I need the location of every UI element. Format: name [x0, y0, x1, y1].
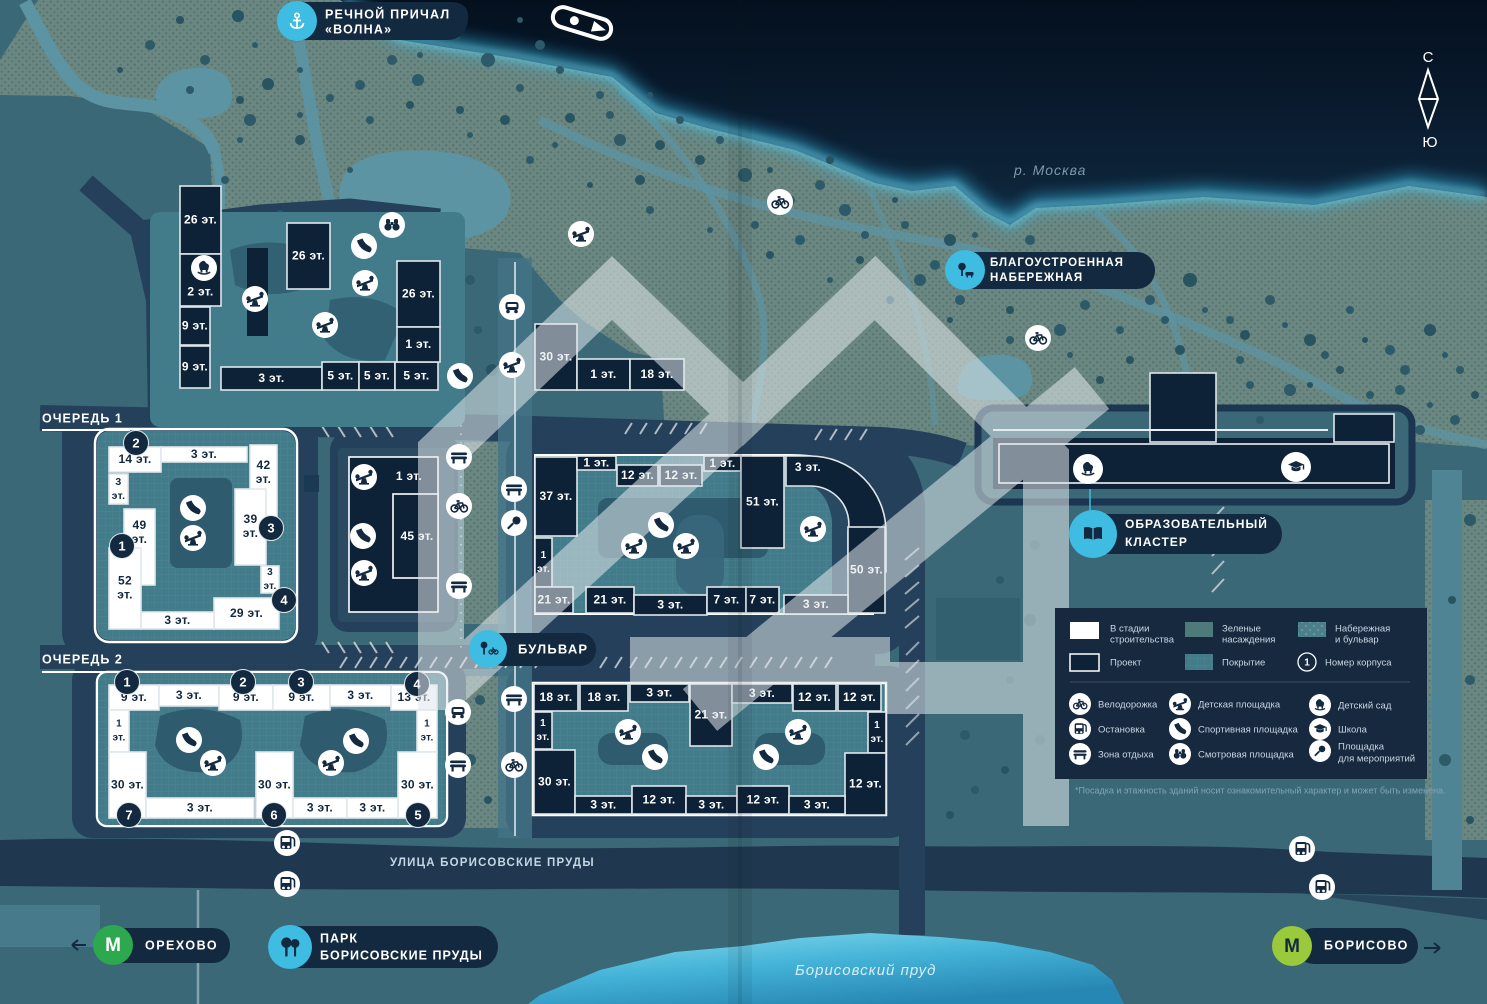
svg-text:39: 39 [244, 512, 258, 526]
svg-text:3: 3 [267, 567, 273, 578]
svg-text:ПАРК: ПАРК [320, 931, 358, 945]
svg-text:Велодорожка: Велодорожка [1098, 700, 1158, 711]
svg-text:р. Москва: р. Москва [1013, 162, 1086, 178]
svg-text:3: 3 [267, 520, 274, 535]
svg-text:Остановка: Остановка [1098, 725, 1146, 736]
svg-text:УЛИЦА БОРИСОВСКИЕ ПРУДЫ: УЛИЦА БОРИСОВСКИЕ ПРУДЫ [390, 857, 595, 869]
svg-text:Площадка: Площадка [1338, 742, 1385, 753]
svg-text:В стадии: В стадии [1110, 624, 1149, 635]
svg-text:21 эт.: 21 эт. [593, 593, 626, 607]
svg-text:1: 1 [874, 720, 880, 731]
svg-text:1 эт.: 1 эт. [590, 367, 616, 381]
svg-text:5 эт.: 5 эт. [364, 369, 390, 383]
svg-text:Детский сад: Детский сад [1338, 701, 1392, 712]
svg-text:Спортивная площадка: Спортивная площадка [1198, 725, 1298, 736]
svg-text:30 эт.: 30 эт. [538, 775, 571, 789]
svg-text:насаждения: насаждения [1222, 635, 1275, 646]
svg-text:М: М [1284, 936, 1300, 957]
svg-text:1: 1 [116, 719, 122, 730]
svg-text:3 эт.: 3 эт. [258, 371, 284, 385]
svg-text:Номер корпуса: Номер корпуса [1325, 658, 1392, 669]
svg-text:3 эт.: 3 эт. [347, 688, 373, 702]
svg-text:5 эт.: 5 эт. [327, 369, 353, 383]
svg-text:3: 3 [115, 476, 121, 488]
svg-text:эт.: эт. [117, 588, 133, 602]
svg-text:КЛАСТЕР: КЛАСТЕР [1125, 535, 1188, 549]
svg-text:Смотровая площадка: Смотровая площадка [1198, 750, 1294, 761]
svg-text:30 эт.: 30 эт. [401, 778, 434, 792]
svg-text:3 эт.: 3 эт. [698, 798, 724, 812]
svg-text:3 эт.: 3 эт. [191, 447, 217, 461]
svg-text:БОРИСОВСКИЕ ПРУДЫ: БОРИСОВСКИЕ ПРУДЫ [320, 948, 483, 962]
svg-text:БЛАГОУСТРОЕННАЯ: БЛАГОУСТРОЕННАЯ [990, 257, 1124, 269]
svg-text:6: 6 [270, 807, 277, 822]
svg-text:26 эт.: 26 эт. [184, 213, 217, 227]
svg-text:М: М [105, 935, 121, 956]
svg-text:12 эт.: 12 эт. [849, 777, 882, 791]
svg-text:3 эт.: 3 эт. [307, 801, 333, 815]
svg-text:эт.: эт. [536, 732, 549, 743]
svg-text:1: 1 [424, 719, 430, 730]
svg-text:5: 5 [414, 807, 421, 822]
svg-text:Зеленые: Зеленые [1222, 624, 1261, 635]
svg-text:эт.: эт. [256, 472, 272, 486]
svg-text:52: 52 [118, 574, 132, 588]
svg-text:7 эт.: 7 эт. [749, 593, 775, 607]
svg-text:1 эт.: 1 эт. [583, 456, 609, 470]
svg-text:1: 1 [118, 538, 125, 553]
svg-text:ОБРАЗОВАТЕЛЬНЫЙ: ОБРАЗОВАТЕЛЬНЫЙ [1125, 516, 1268, 531]
svg-text:3: 3 [297, 674, 304, 689]
svg-text:3 эт.: 3 эт. [657, 598, 683, 612]
svg-text:Проект: Проект [1110, 658, 1142, 669]
svg-text:2: 2 [239, 674, 246, 689]
svg-text:26 эт.: 26 эт. [402, 287, 435, 301]
svg-text:1: 1 [123, 674, 130, 689]
svg-text:эт.: эт. [420, 733, 433, 744]
svg-text:С: С [1423, 49, 1434, 66]
svg-text:для мероприятий: для мероприятий [1338, 754, 1415, 765]
svg-text:12 эт.: 12 эт. [798, 690, 831, 704]
svg-text:и бульвар: и бульвар [1335, 635, 1379, 646]
svg-text:18 эт.: 18 эт. [587, 690, 620, 704]
svg-text:12 эт.: 12 эт. [642, 793, 675, 807]
svg-text:эт.: эт. [243, 526, 259, 540]
svg-text:12 эт.: 12 эт. [843, 690, 876, 704]
svg-text:1: 1 [1304, 658, 1310, 669]
svg-text:2 эт.: 2 эт. [187, 285, 213, 299]
svg-text:*Посадка и этажность зданий но: *Посадка и этажность зданий носит ознако… [1075, 785, 1446, 795]
svg-text:эт.: эт. [870, 734, 883, 745]
svg-text:Зона отдыха: Зона отдыха [1098, 750, 1154, 761]
svg-text:3 эт.: 3 эт. [590, 798, 616, 812]
svg-text:Покрытие: Покрытие [1222, 658, 1265, 669]
svg-text:Детская площадка: Детская площадка [1198, 700, 1281, 711]
svg-text:3 эт.: 3 эт. [359, 801, 385, 815]
svg-text:30 эт.: 30 эт. [111, 778, 144, 792]
svg-text:3 эт.: 3 эт. [187, 801, 213, 815]
svg-text:3 эт.: 3 эт. [176, 688, 202, 702]
svg-text:эт.: эт. [112, 490, 126, 502]
svg-text:49: 49 [133, 518, 147, 532]
svg-text:эт.: эт. [112, 733, 125, 744]
svg-text:37 эт.: 37 эт. [539, 489, 572, 503]
svg-text:1: 1 [540, 718, 546, 729]
svg-text:1: 1 [541, 550, 547, 561]
svg-text:18 эт.: 18 эт. [539, 690, 572, 704]
svg-text:9 эт.: 9 эт. [182, 319, 208, 333]
svg-text:БОРИСОВО: БОРИСОВО [1324, 938, 1409, 952]
svg-text:эт.: эт. [263, 581, 276, 592]
svg-text:3 эт.: 3 эт. [804, 798, 830, 812]
svg-text:29 эт.: 29 эт. [230, 606, 263, 620]
svg-text:3 эт.: 3 эт. [646, 686, 672, 700]
svg-text:30 эт.: 30 эт. [258, 778, 291, 792]
svg-text:3 эт.: 3 эт. [164, 613, 190, 627]
svg-text:3 эт.: 3 эт. [795, 460, 821, 474]
svg-text:ОЧЕРЕДЬ 2: ОЧЕРЕДЬ 2 [42, 652, 123, 666]
svg-text:ОРЕХОВО: ОРЕХОВО [145, 938, 218, 952]
svg-text:ОЧЕРЕДЬ 1: ОЧЕРЕДЬ 1 [42, 411, 123, 425]
svg-text:РЕЧНОЙ ПРИЧАЛ: РЕЧНОЙ ПРИЧАЛ [325, 6, 450, 21]
svg-text:26 эт.: 26 эт. [292, 249, 325, 263]
svg-text:1 эт.: 1 эт. [405, 337, 431, 351]
svg-text:Школа: Школа [1338, 725, 1368, 736]
svg-text:строительства: строительства [1110, 635, 1175, 646]
svg-text:Набережная: Набережная [1335, 624, 1390, 635]
svg-text:БУЛЬВАР: БУЛЬВАР [518, 641, 588, 656]
svg-text:42: 42 [257, 458, 271, 472]
svg-text:2: 2 [132, 435, 139, 450]
svg-text:9 эт.: 9 эт. [182, 360, 208, 374]
svg-text:5 эт.: 5 эт. [403, 369, 429, 383]
svg-text:Ю: Ю [1422, 134, 1437, 151]
svg-text:4: 4 [280, 592, 288, 607]
svg-text:Борисовский пруд: Борисовский пруд [795, 962, 936, 979]
svg-text:НАБЕРЕЖНАЯ: НАБЕРЕЖНАЯ [990, 272, 1083, 284]
svg-text:«ВОЛНА»: «ВОЛНА» [325, 22, 392, 36]
svg-text:7: 7 [125, 807, 132, 822]
